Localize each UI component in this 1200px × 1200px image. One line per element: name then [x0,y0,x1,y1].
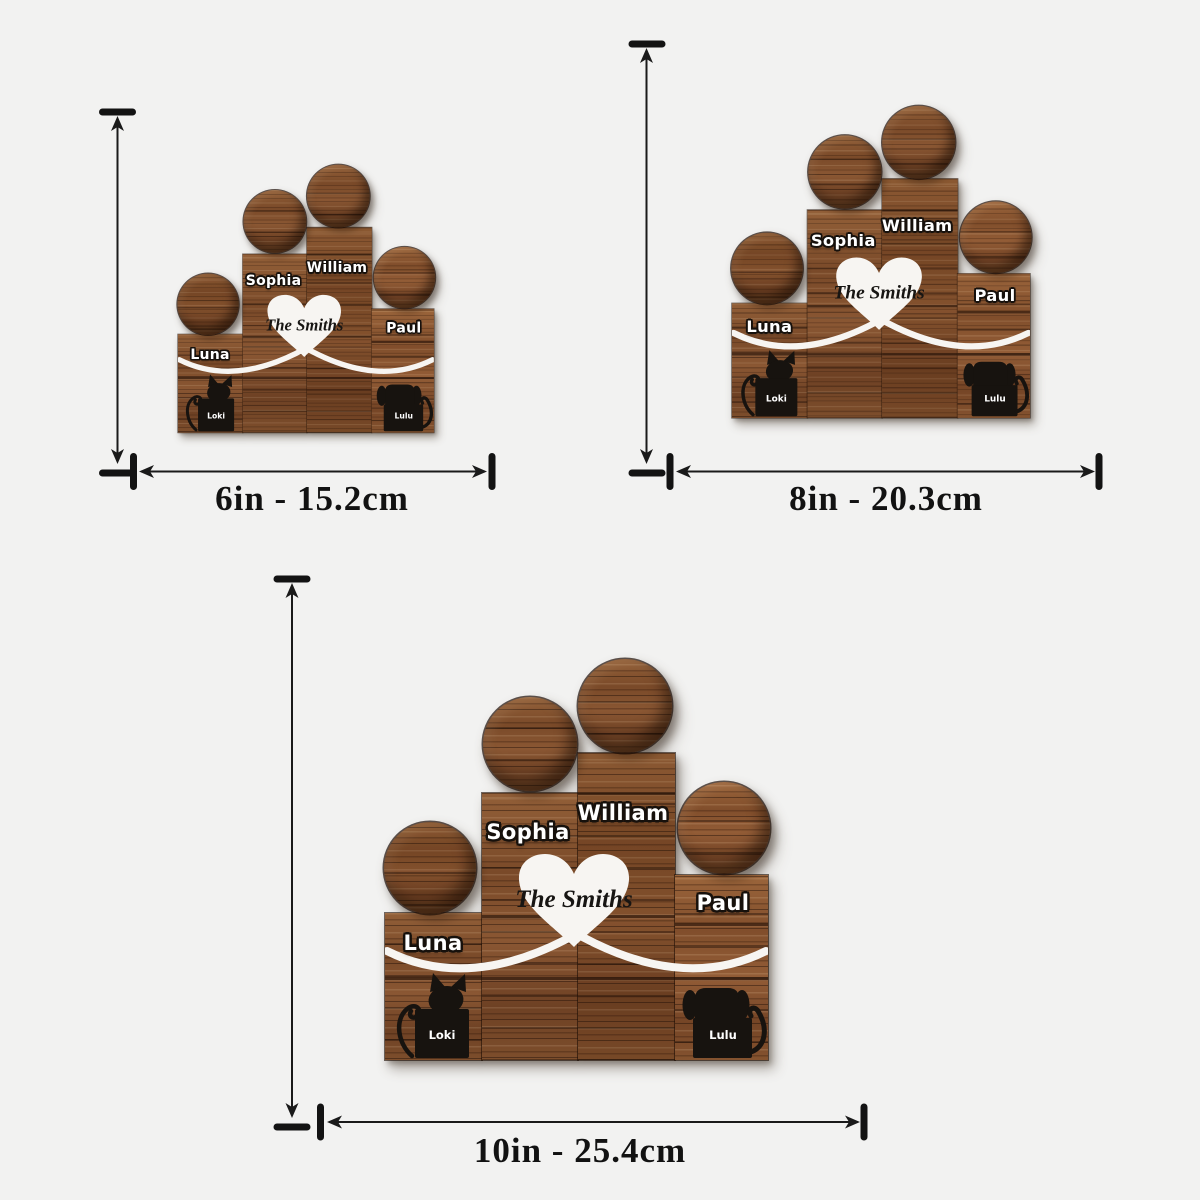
family-member-name-1: Sophia [486,820,569,844]
dog-name-text: Lulu [984,394,1005,404]
family-member-name-3: Paul [697,891,750,915]
dog-name-text: Lulu [709,1028,737,1042]
family-member-name-1: Sophia [811,231,876,250]
family-member-name-0: Luna [403,931,462,955]
size-label-10in: 10in - 25.4cm [474,1131,686,1171]
dog-name-text: Lulu [395,412,413,421]
family-name-heart: The Smiths [265,295,343,357]
height-arrow-6in [99,109,136,477]
dog-silhouette: Lulu [963,362,1027,416]
family-name-text: The Smiths [833,283,924,304]
dog-silhouette: Lulu [683,988,765,1058]
cat-name-text: Loki [766,394,787,404]
product-size-chart: 6in - 15.2cm 8in - 20.3cm 10in - 25.4cm … [0,0,1200,1200]
family-member-name-3: Paul [974,286,1015,305]
cat-silhouette: Loki [187,374,234,431]
height-arrow-10in [274,576,311,1131]
family-member-name-2: William [882,216,953,235]
dog-silhouette: Lulu [377,384,432,431]
plaque-decor-layer: The Smiths Loki Lulu [385,658,768,1060]
plaque-decor-layer: The Smiths Loki Lulu [732,105,1030,418]
size-label-6in: 6in - 15.2cm [215,479,409,519]
family-name-heart: The Smiths [833,257,924,329]
cat-silhouette: Loki [743,350,797,416]
family-name-heart: The Smiths [515,854,632,947]
cat-silhouette: Loki [399,973,469,1058]
plaque-8in: LunaSophiaWilliamPaul The Smiths Loki Lu… [732,105,1030,418]
family-name-text: The Smiths [265,315,343,334]
plaque-6in: LunaSophiaWilliamPaul The Smiths Loki Lu… [178,164,434,433]
family-member-name-0: Luna [746,317,792,336]
family-member-name-2: William [307,260,368,276]
family-member-name-2: William [578,801,669,825]
cat-name-text: Loki [207,412,225,421]
height-arrow-8in [629,41,666,477]
cat-name-text: Loki [429,1028,456,1042]
plaque-decor-layer: The Smiths Loki Lulu [178,164,434,433]
size-label-8in: 8in - 20.3cm [789,479,983,519]
family-member-name-0: Luna [190,346,229,362]
family-member-name-1: Sophia [246,272,302,288]
plaque-10in: LunaSophiaWilliamPaul The Smiths Loki Lu… [385,658,768,1060]
family-member-name-3: Paul [386,320,421,336]
family-name-text: The Smiths [515,886,632,913]
